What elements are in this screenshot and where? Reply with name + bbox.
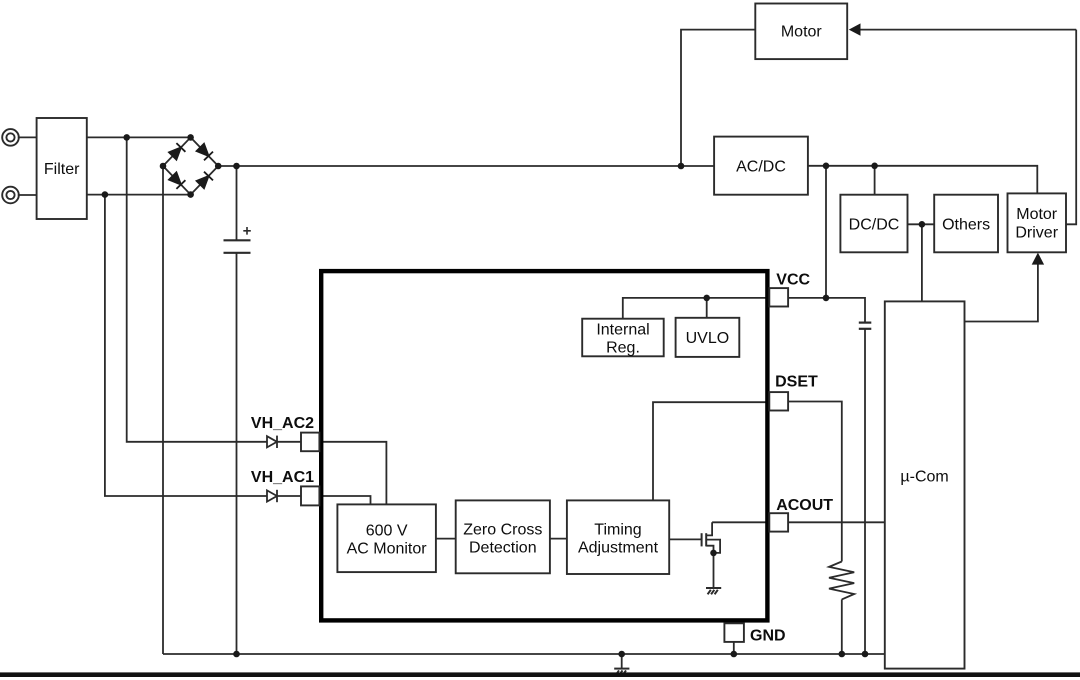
svg-text:GND: GND: [750, 627, 786, 644]
svg-text:Internal: Internal: [596, 322, 649, 339]
svg-text:AC Monitor: AC Monitor: [347, 540, 428, 557]
svg-text:DSET: DSET: [775, 374, 818, 391]
svg-text:Others: Others: [942, 217, 990, 234]
svg-text:DC/DC: DC/DC: [849, 217, 900, 234]
svg-text:VH_AC1: VH_AC1: [251, 469, 314, 486]
svg-text:Zero Cross: Zero Cross: [463, 522, 542, 539]
svg-text:Adjustment: Adjustment: [578, 540, 659, 557]
svg-text:Filter: Filter: [44, 161, 80, 178]
svg-text:Motor: Motor: [781, 24, 823, 41]
svg-text:Detection: Detection: [469, 540, 537, 557]
svg-text:µ-Com: µ-Com: [900, 469, 948, 486]
svg-text:ACOUT: ACOUT: [776, 497, 833, 514]
svg-text:Reg.: Reg.: [606, 340, 640, 357]
svg-text:VH_AC2: VH_AC2: [251, 415, 314, 432]
svg-text:AC/DC: AC/DC: [736, 159, 786, 176]
svg-text:Timing: Timing: [594, 522, 641, 539]
svg-text:VCC: VCC: [776, 272, 810, 289]
svg-text:Motor: Motor: [1016, 206, 1058, 223]
svg-text:600 V: 600 V: [366, 522, 408, 539]
svg-text:UVLO: UVLO: [686, 330, 730, 347]
svg-text:Driver: Driver: [1015, 225, 1058, 242]
